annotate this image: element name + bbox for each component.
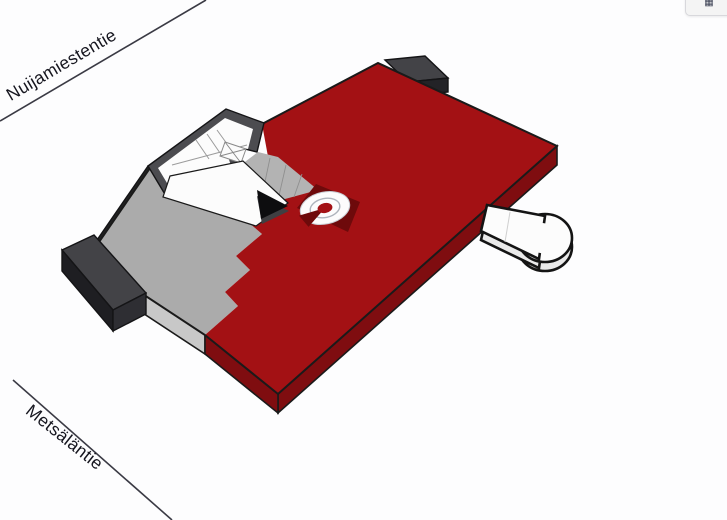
map-3d-scene[interactable] [0, 0, 727, 520]
map-canvas[interactable]: Nuijamiestentie Metsäläntie ▦ [0, 0, 727, 520]
map-control-button-partial[interactable]: ▦ [685, 0, 727, 16]
street-line-nuijamiestentie [0, 0, 206, 121]
canopy-structure [481, 205, 572, 271]
grid-icon: ▦ [704, 0, 713, 8]
canopy-junction-patch [526, 221, 549, 254]
